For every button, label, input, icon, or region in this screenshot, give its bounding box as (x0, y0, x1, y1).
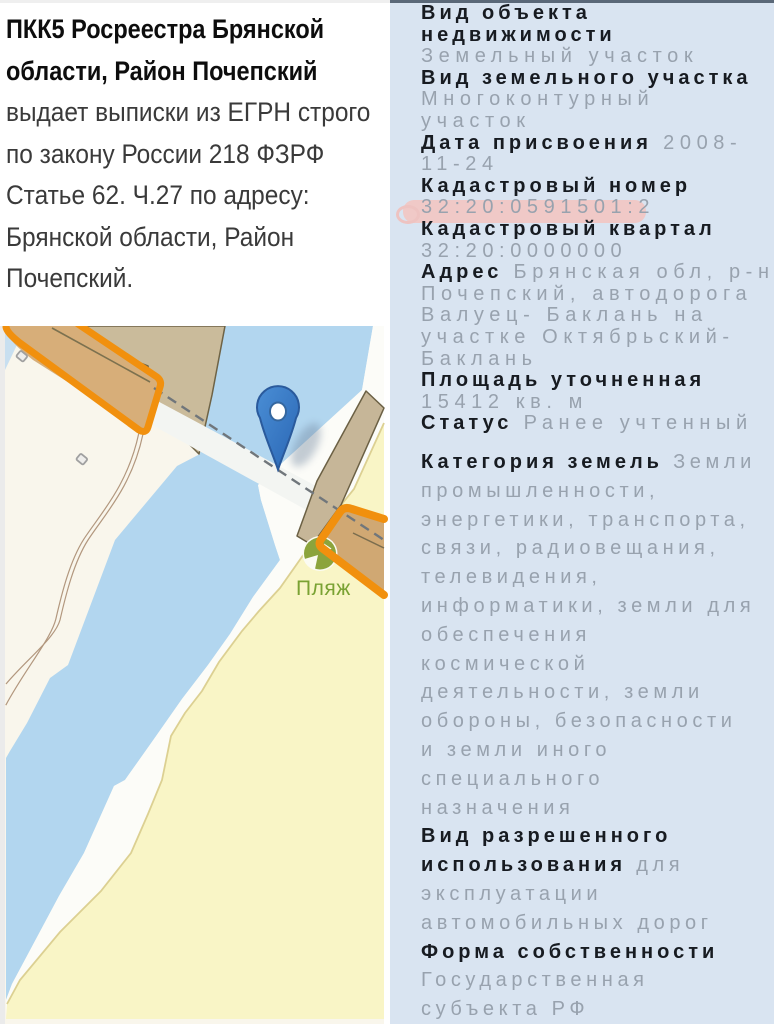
svg-text:Пляж: Пляж (296, 577, 351, 600)
